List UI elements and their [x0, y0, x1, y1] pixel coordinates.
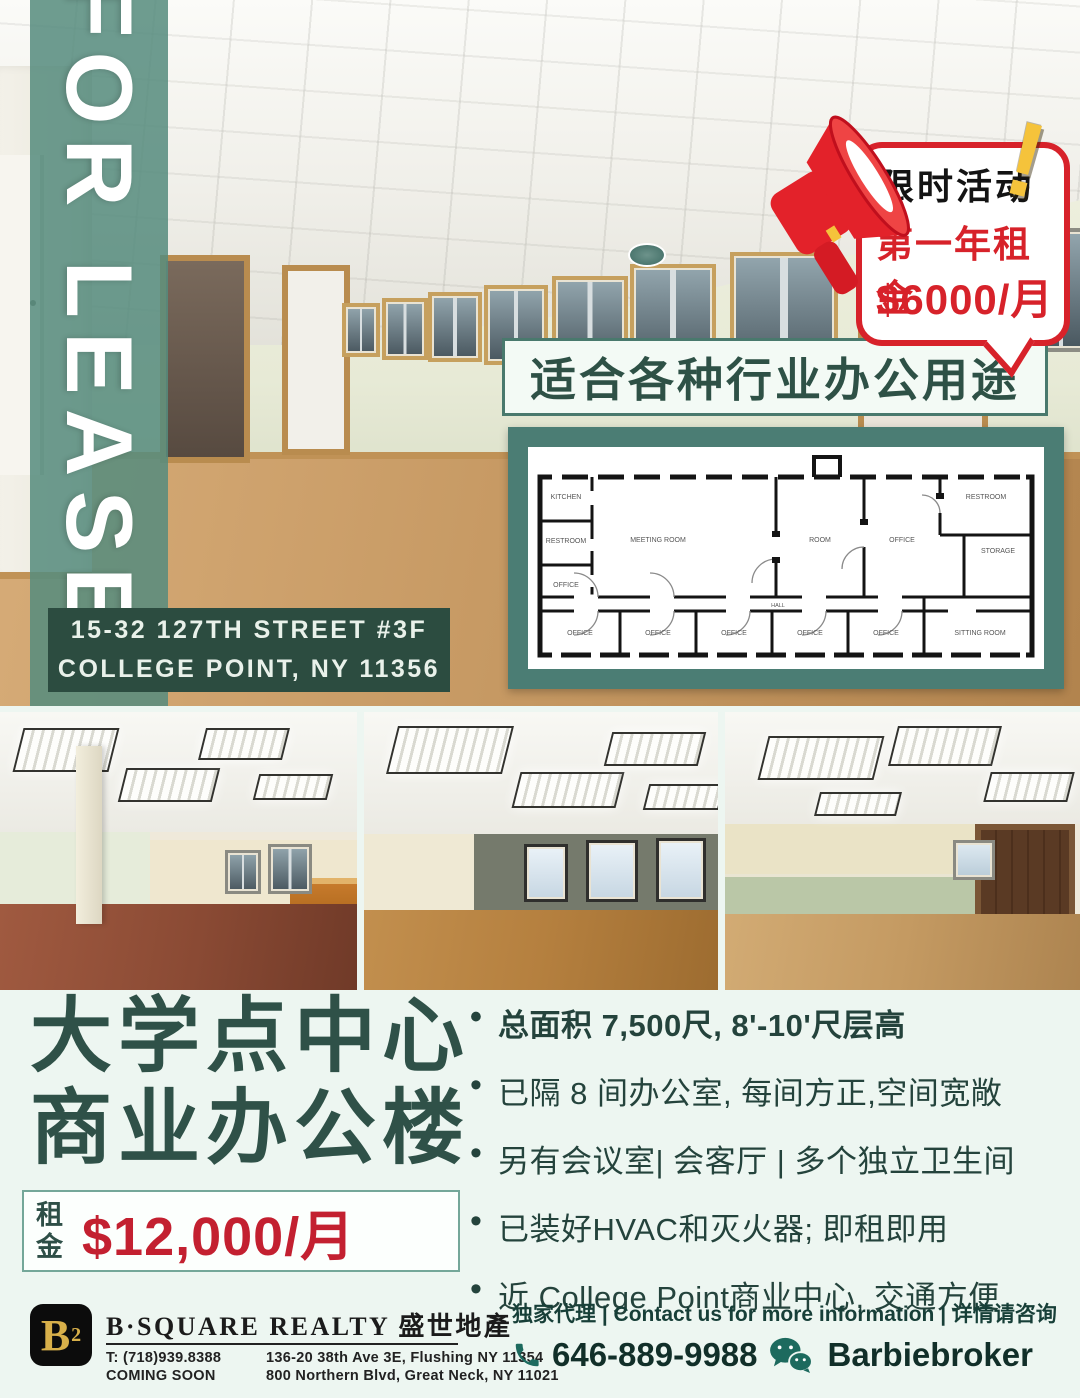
rent-price: $12,000/月	[82, 1192, 355, 1271]
room-label: OFFICE	[721, 630, 747, 637]
feature-list: 总面积 7,500尺, 8'-10'尺层高 已隔 8 间办公室, 每间方正,空间…	[468, 1000, 1080, 1340]
agency-tel: T: (718)939.8388	[106, 1350, 254, 1366]
ceiling-light	[118, 768, 220, 802]
room-label: KITCHEN	[551, 494, 582, 501]
window	[524, 844, 568, 902]
contact-line: 独家代理 | Contact us for more information |…	[512, 1298, 1078, 1328]
ceiling-light	[758, 736, 885, 780]
photo-1	[0, 712, 357, 990]
ceiling-light	[13, 728, 120, 772]
floor-plan: MEETING ROOM KITCHEN RESTROOM OFFICE ROO…	[508, 427, 1064, 689]
room-label: MEETING ROOM	[630, 537, 686, 544]
room-label: OFFICE	[645, 630, 671, 637]
ceiling-light	[198, 728, 290, 760]
ceiling-light	[253, 774, 333, 800]
property-title-line1: 大学点中心	[30, 996, 470, 1078]
window	[342, 303, 380, 357]
window	[428, 292, 482, 362]
doorway	[282, 265, 350, 455]
floor-plan-drawing: MEETING ROOM KITCHEN RESTROOM OFFICE ROO…	[528, 447, 1044, 669]
ceiling-light	[512, 772, 625, 808]
ceiling-light	[888, 726, 1002, 766]
ceiling-light	[643, 784, 718, 810]
logo-b: B	[41, 1310, 70, 1361]
wall-clock	[628, 243, 666, 267]
room-label: OFFICE	[553, 582, 579, 589]
window	[268, 844, 312, 894]
room-label: HALL	[771, 603, 785, 609]
address-line2: COLLEGE POINT, NY 11356	[58, 650, 440, 689]
property-title-line2: 商业办公楼	[30, 1088, 470, 1170]
window	[656, 838, 706, 902]
window	[382, 298, 428, 360]
room-label: RESTROOM	[966, 494, 1007, 501]
doorway	[160, 255, 250, 463]
room-label: OFFICE	[889, 537, 915, 544]
room-label: OFFICE	[873, 630, 899, 637]
wood-floor	[0, 904, 357, 990]
ceiling-light	[814, 792, 902, 816]
room-label: OFFICE	[567, 630, 593, 637]
window	[225, 850, 261, 894]
agency-coming-soon: COMING SOON	[106, 1368, 254, 1384]
room-label: RESTROOM	[546, 538, 587, 545]
for-lease-text: FOR LEASE	[45, 0, 153, 644]
photo-3	[725, 712, 1080, 990]
suitability-banner: 适合各种行业办公用途	[502, 338, 1048, 416]
rent-label: 租金	[36, 1199, 66, 1264]
feature-item: 另有会议室| 会客厅 | 多个独立卫生间	[468, 1136, 1080, 1181]
megaphone-icon	[748, 104, 918, 304]
feature-item: 总面积 7,500尺, 8'-10'尺层高	[468, 1000, 1080, 1045]
feature-item: 已装好HVAC和灭火器; 即租即用	[468, 1204, 1080, 1249]
contact-row: 646-889-9988 Barbiebroker	[512, 1336, 1033, 1374]
company-logo: B2	[30, 1304, 92, 1366]
phone-icon	[512, 1340, 542, 1370]
window	[586, 840, 638, 902]
ceiling-light	[983, 772, 1074, 802]
feature-item: 已隔 8 间办公室, 每间方正,空间宽敞	[468, 1068, 1080, 1113]
agency-info: T: (718)939.8388 136-20 38th Ave 3E, Flu…	[106, 1350, 559, 1384]
wood-floor	[725, 914, 1080, 990]
price-box: 租金 $12,000/月	[22, 1190, 460, 1272]
room-label: STORAGE	[981, 548, 1015, 555]
photo-2	[364, 712, 718, 990]
room-label: OFFICE	[797, 630, 823, 637]
address-box: 15-32 127TH STREET #3F COLLEGE POINT, NY…	[48, 608, 450, 692]
brand-name: B·SQUARE REALTY 盛世地產	[106, 1306, 512, 1343]
window	[953, 840, 995, 880]
flyer-page: FOR LEASE 15-32 127TH STREET #3F COLLEGE…	[0, 0, 1080, 1398]
wechat-id: Barbiebroker	[828, 1336, 1033, 1374]
ceiling-light	[604, 732, 706, 766]
room-label: ROOM	[809, 537, 831, 544]
room-label: SITTING ROOM	[954, 630, 1006, 637]
wall-lower	[725, 874, 975, 919]
address-line1: 15-32 127TH STREET #3F	[71, 611, 428, 650]
wall	[0, 830, 150, 908]
wall	[364, 834, 474, 910]
wall-upper	[725, 824, 975, 874]
column	[76, 746, 102, 924]
wood-floor	[364, 910, 718, 990]
ceiling-light	[386, 726, 514, 774]
contact-phone: 646-889-9988	[552, 1336, 758, 1374]
brand-divider	[106, 1343, 458, 1345]
wechat-icon	[768, 1336, 814, 1374]
